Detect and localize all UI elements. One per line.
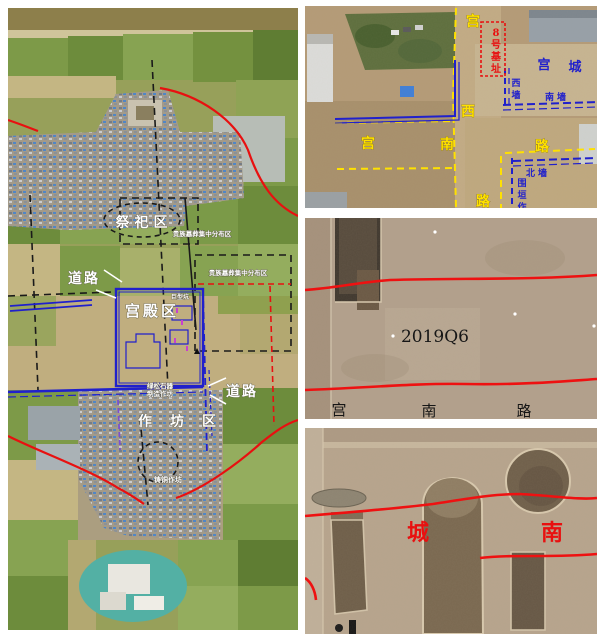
label-noble-tombs-east: 贵族墓葬集中分布区 [209,268,268,277]
panel-site-aerial-map: 祭祀区 贵族墓葬集中分布区 贵族墓葬集中分布区 道路 宫殿区 巨型坑 道路 作坊… [8,8,298,630]
label-enclosure-char-yuan: 垣 [517,189,526,201]
label-road-south-char-lu: 路 [535,138,550,155]
museum-complex [79,550,187,622]
label-enclosure-char-wei: 围 [517,178,526,189]
label-road-west-char-gong: 宫 [466,13,480,30]
label-west-wall-char-qiang: 墙 [511,89,520,101]
chengnan-canvas: 城 南 [305,428,597,634]
label-palace-city-char-gong: 宫 [537,57,550,73]
label-road-south-char-gong: 宫 [361,135,375,152]
label-city-char-nan: 南 [541,520,563,546]
label-excavation-unit: 2019Q6 [401,327,469,347]
label-bronze-workshop: 铸铜作坊 [154,475,182,484]
label-west-wall-char-xi: 西 [511,78,520,89]
label-noble-tombs-north: 贵族墓葬集中分布区 [173,229,232,238]
label-foundation8-char-8: 8 [493,28,500,39]
label-turquoise-workshop-line1: 绿松石器 [147,381,174,390]
label-city-char-cheng: 城 [407,520,429,546]
palace-roads-canvas: 宫 西 路 宫 南 路 宫 城 8 号 基 址 西 墙 南墙 北墙 围 垣 作 [305,6,597,208]
label-road-west: 道路 [68,270,100,287]
label-foundation8-char-zhi: 址 [491,62,501,75]
label-giant-pit: 巨型坑 [171,293,189,301]
panel-gongnanlu-excavation-photo: 2019Q6 宫 南 路 [305,218,597,419]
label-turquoise-workshop-line2: 制造作坊 [147,389,174,398]
label-south-wall: 南墙 [545,91,569,103]
gongnanlu-canvas: 2019Q6 宫 南 路 [305,218,597,419]
panel-palace-roads-photo: 宫 西 路 宫 南 路 宫 城 8 号 基 址 西 墙 南墙 北墙 围 垣 作 [305,6,597,208]
label-road-east: 道路 [226,383,258,400]
label-workshop-area: 作坊区 [138,413,234,430]
label-sacrifice-area: 祭祀区 [115,214,173,231]
label-palace-area: 宫殿区 [125,302,179,320]
label-foundation8-char-hao: 号 [491,39,501,51]
label-foundation8-char-ji: 基 [490,50,502,63]
composite-figure: 祭祀区 贵族墓葬集中分布区 贵族墓葬集中分布区 道路 宫殿区 巨型坑 道路 作坊… [0,0,600,640]
panel-chengnan-excavation-photo: 城 南 [305,428,597,634]
label-enclosure-char-zuo: 作 [517,201,526,208]
label-north-wall: 北墙 [526,167,550,179]
label-road-char-lu: 路 [516,402,531,419]
label-road-west-char-xi: 西 [461,104,475,120]
label-road-char-gong: 宫 [331,401,346,419]
label-road-west-char-lu: 路 [476,193,491,208]
ground-and-buildings [305,6,597,208]
label-road-south-char-nan: 南 [440,136,454,153]
label-palace-city-char-cheng: 城 [568,59,581,75]
site-map-canvas: 祭祀区 贵族墓葬集中分布区 贵族墓葬集中分布区 道路 宫殿区 巨型坑 道路 作坊… [8,8,298,630]
label-road-char-nan: 南 [421,402,436,419]
